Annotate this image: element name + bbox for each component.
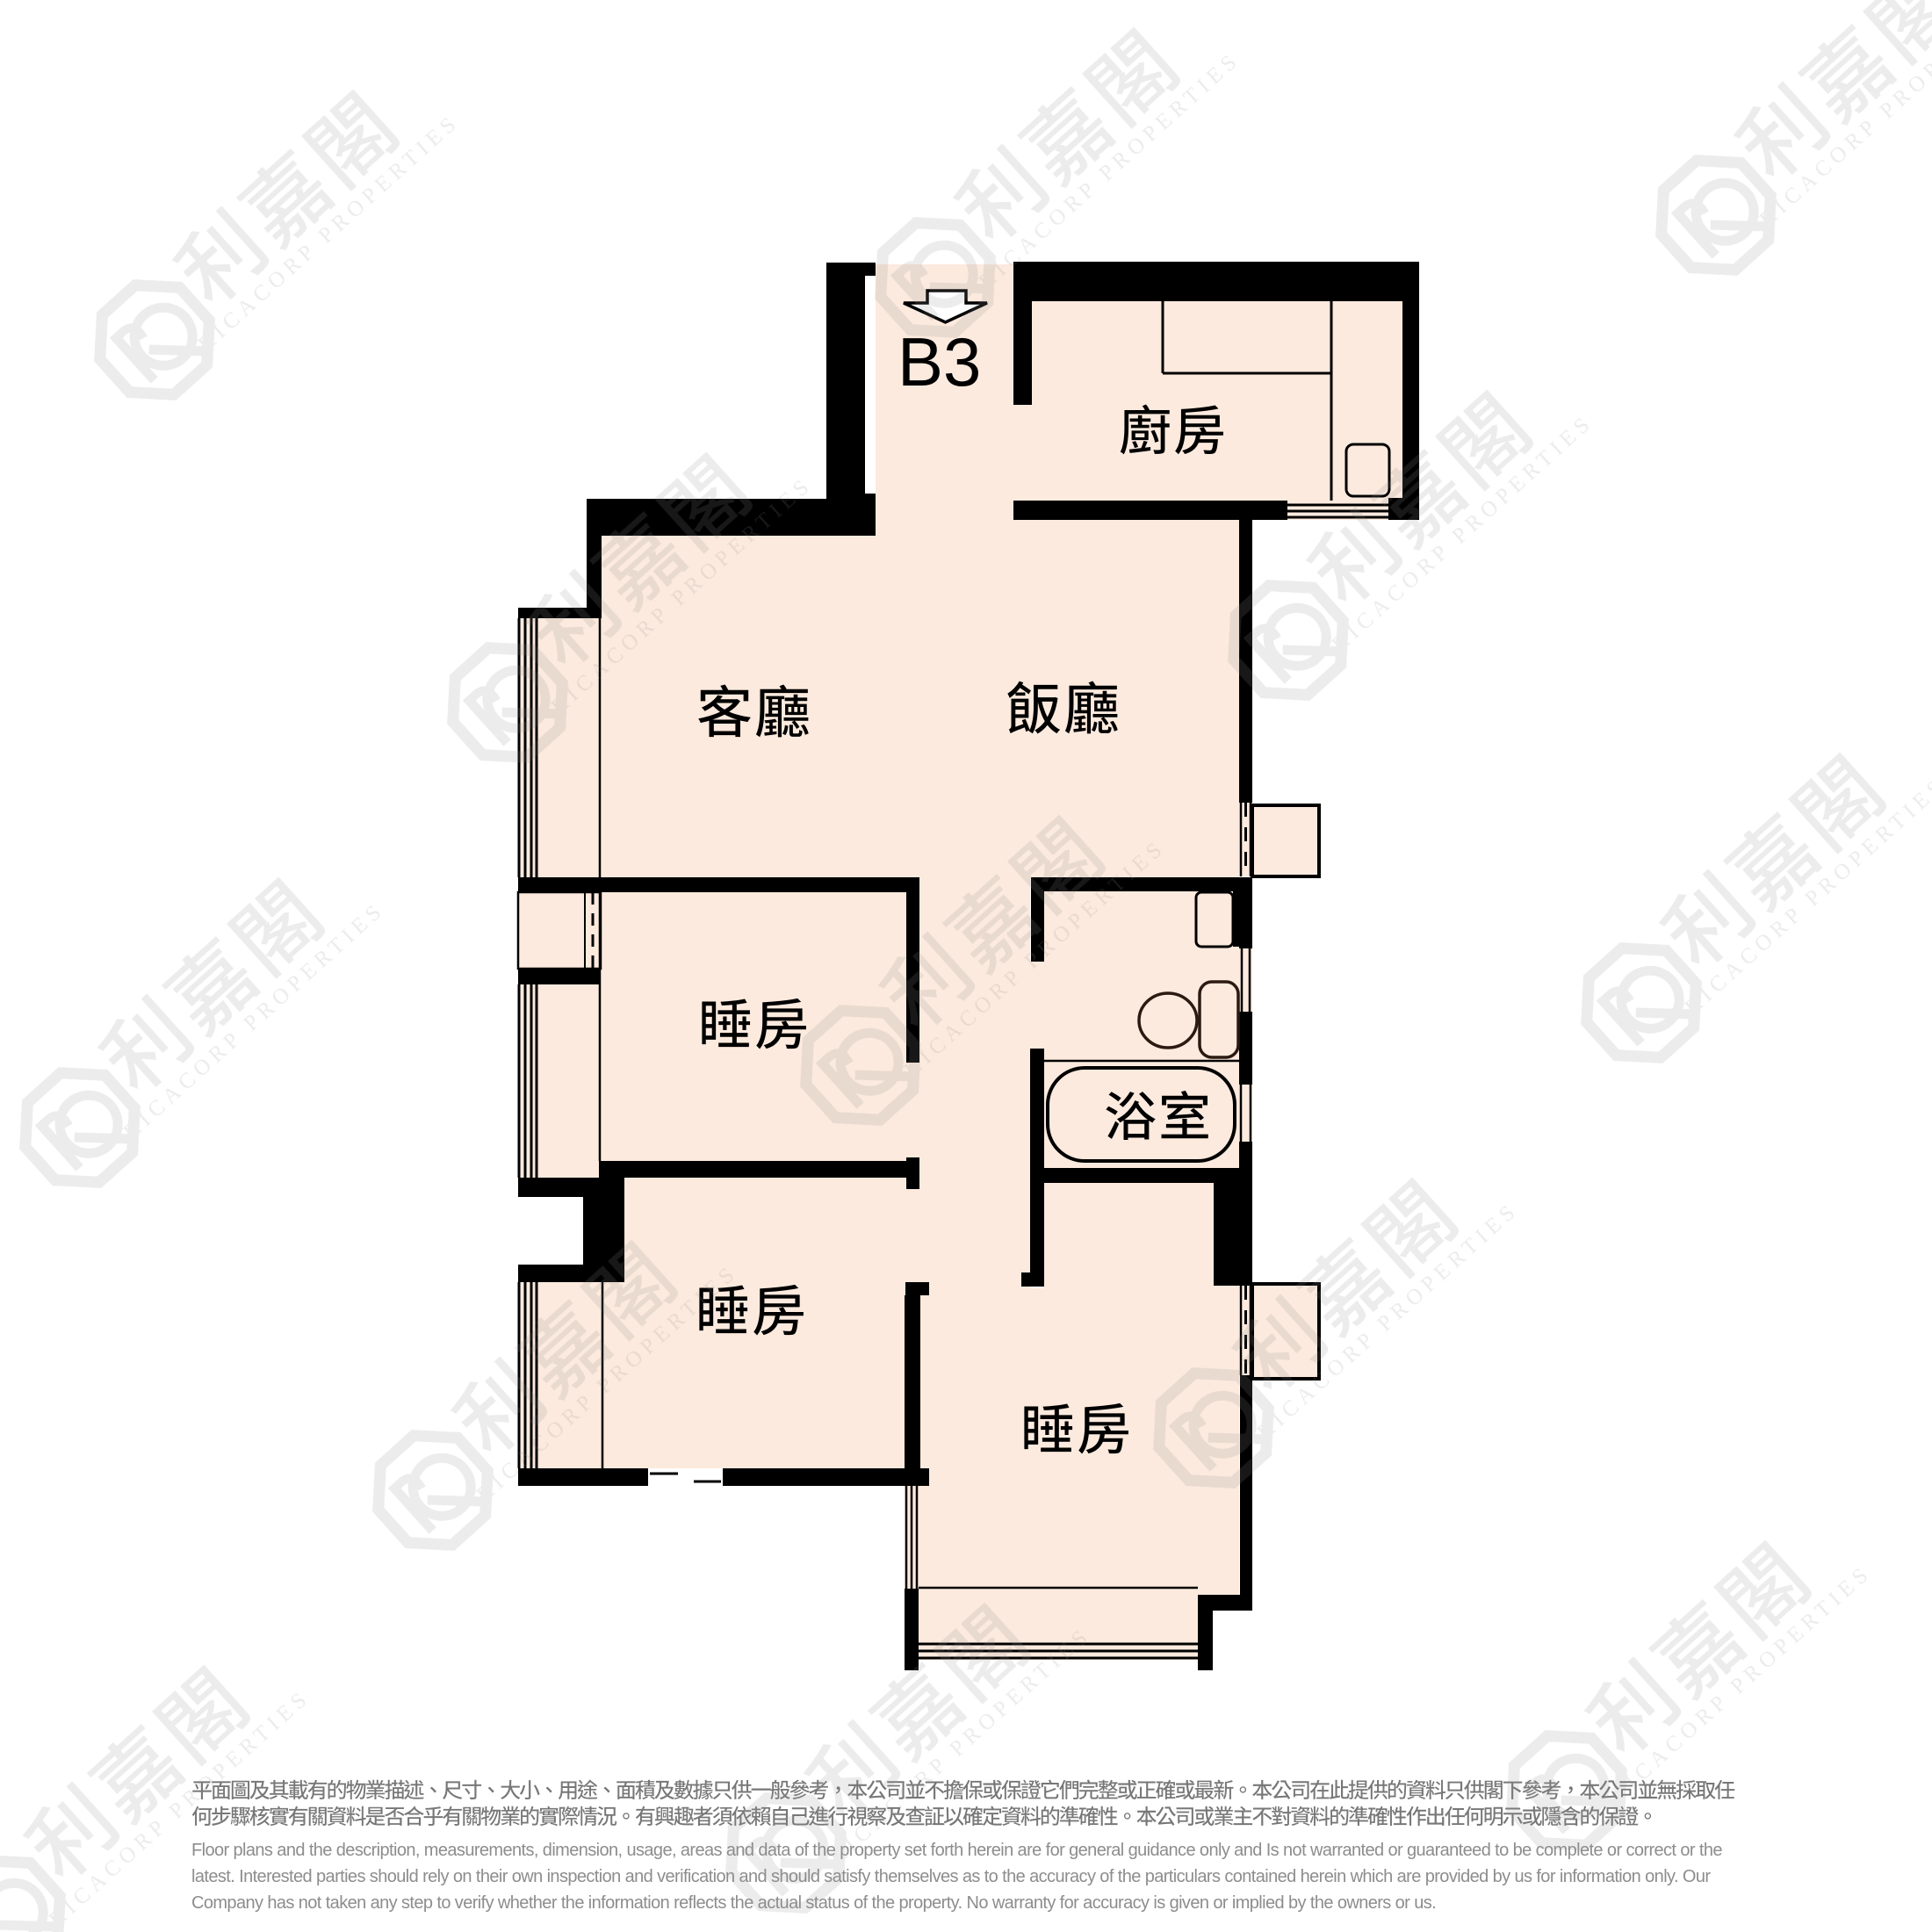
svg-text:Floor plans and the descriptio: Floor plans and the description, measure… — [191, 1841, 1722, 1860]
svg-text:latest. Interested parties sho: latest. Interested parties should rely o… — [191, 1867, 1711, 1886]
